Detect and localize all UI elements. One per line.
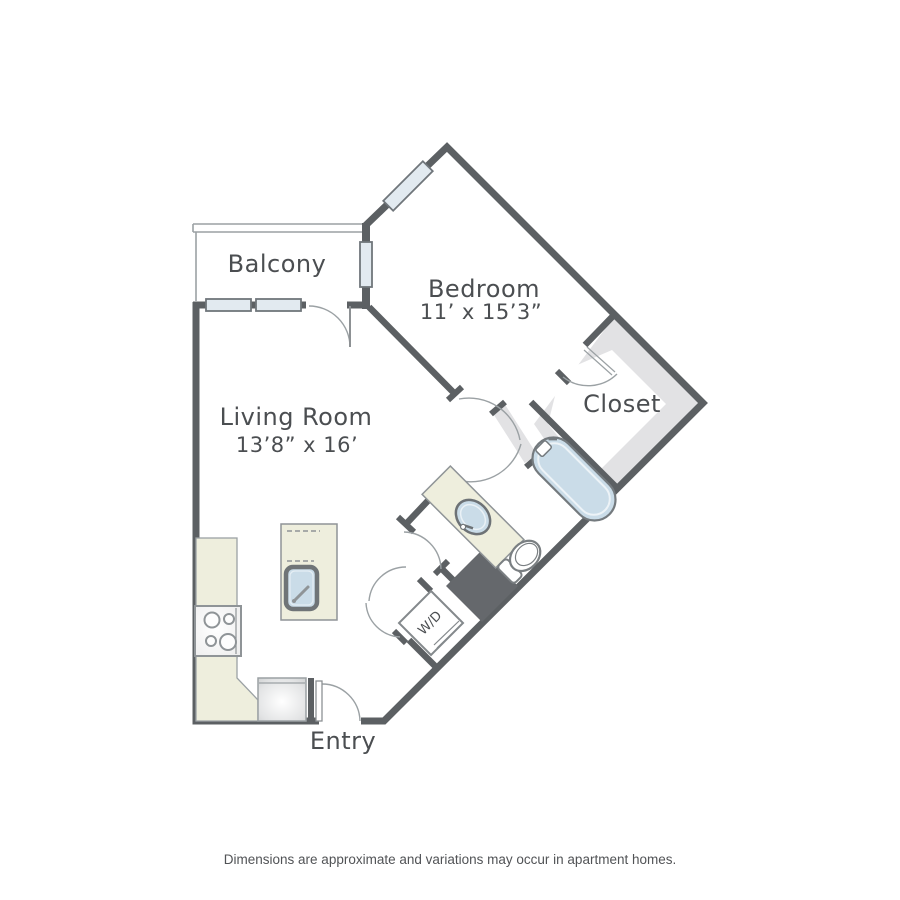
closet-label: Closet <box>583 390 661 418</box>
washer-dryer-icon: W/D <box>399 591 463 655</box>
kitchen-counter-bottom <box>196 656 258 721</box>
kitchen-island <box>281 524 337 620</box>
entry-label: Entry <box>310 727 376 755</box>
balcony-side-window <box>360 242 372 287</box>
island-sink-icon <box>286 567 317 609</box>
bedroom-window <box>383 161 432 210</box>
floor-plan-page: W/D Balcony Bedroom 11’ x 15’3” Living R… <box>0 0 900 900</box>
floor-plan: W/D Balcony Bedroom 11’ x 15’3” Living R… <box>0 0 900 900</box>
living-room-dimensions: 13’8” x 16’ <box>236 433 358 457</box>
stove-icon <box>195 606 241 656</box>
laundry-door-arc-top <box>369 567 406 601</box>
entry-door-arc <box>322 684 360 721</box>
bathroom-door-arc <box>462 444 521 482</box>
disclaimer-text: Dimensions are approximate and variation… <box>224 852 676 867</box>
jamb-laundry-top <box>419 579 431 591</box>
balcony-label: Balcony <box>228 250 327 278</box>
refrigerator-icon <box>258 678 306 721</box>
living-room-window-right <box>256 299 301 311</box>
balcony-door-arc <box>309 306 350 347</box>
living-room-window-left <box>206 299 251 311</box>
windows <box>206 161 433 311</box>
bedroom-dimensions: 11’ x 15’3” <box>420 300 542 324</box>
entry-door-leaf <box>316 681 322 721</box>
bath-nook-door-arc <box>404 532 441 569</box>
linen-wall-shading <box>499 409 531 459</box>
living-room-label: Living Room <box>220 403 373 431</box>
bedroom-label: Bedroom <box>428 275 540 303</box>
